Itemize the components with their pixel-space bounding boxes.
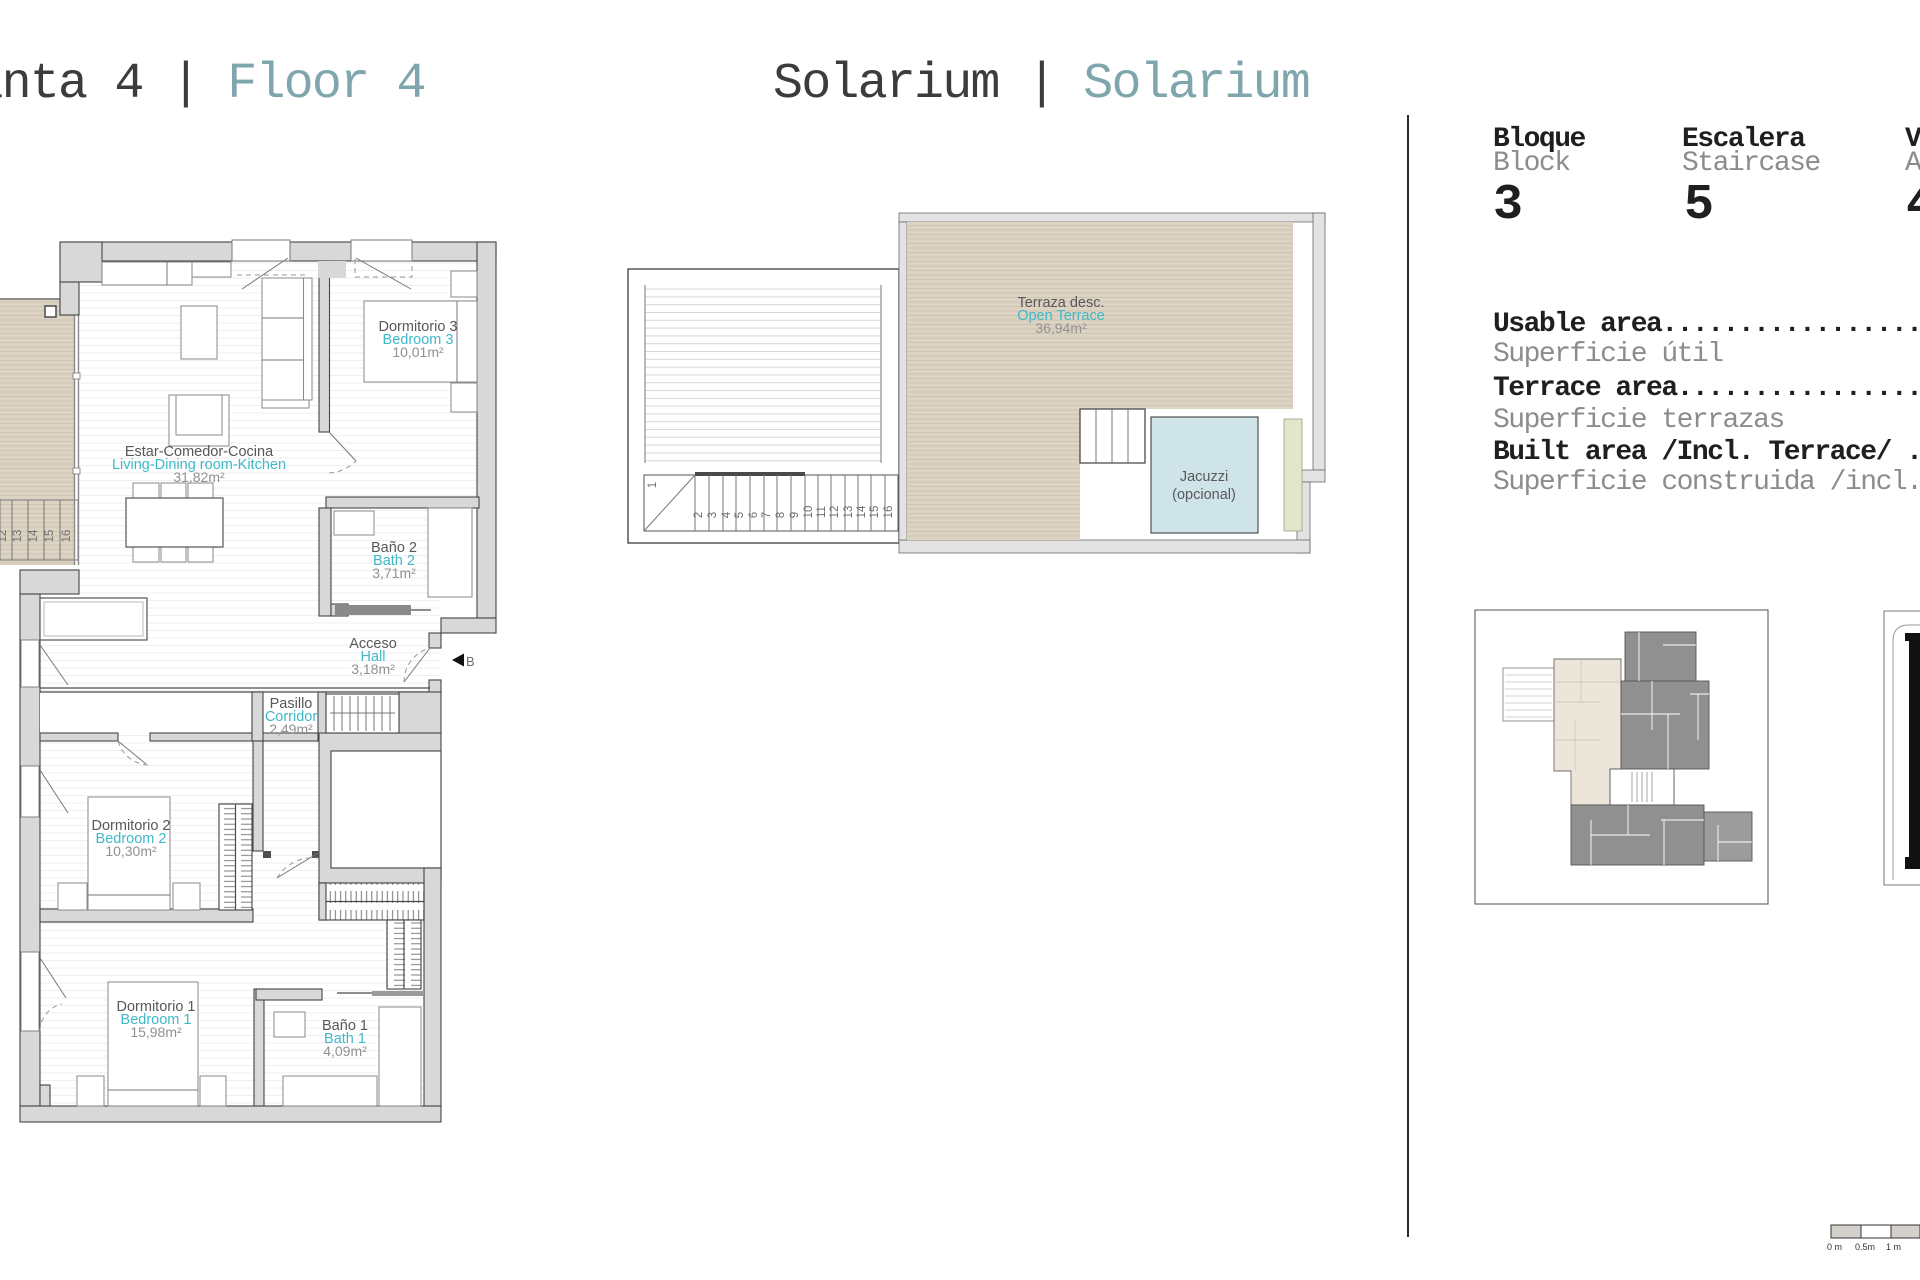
- svg-text:7: 7: [761, 512, 773, 518]
- svg-text:10: 10: [803, 506, 815, 519]
- svg-text:8: 8: [775, 512, 787, 518]
- svg-text:12: 12: [829, 506, 841, 519]
- svg-text:(opcional): (opcional): [1172, 487, 1236, 503]
- svg-text:16: 16: [61, 530, 73, 543]
- svg-text:2: 2: [693, 512, 705, 518]
- svg-text:Apartment: Apartment: [1905, 148, 1920, 179]
- svg-text:Usable area...................: Usable area.....................: [1493, 309, 1920, 340]
- svg-text:31,82m²: 31,82m²: [173, 469, 225, 485]
- svg-text:15: 15: [44, 530, 56, 543]
- svg-text:13: 13: [12, 530, 24, 543]
- svg-text:Planta 4 | Floor 4: Planta 4 | Floor 4: [0, 56, 425, 113]
- svg-text:9: 9: [789, 512, 801, 518]
- svg-text:14: 14: [28, 529, 40, 542]
- svg-text:Staircase: Staircase: [1682, 148, 1820, 179]
- svg-text:5: 5: [1684, 177, 1712, 234]
- svg-text:4: 4: [1906, 177, 1920, 234]
- svg-text:Superficie útil: Superficie útil: [1493, 339, 1723, 370]
- svg-text:B: B: [466, 654, 475, 669]
- svg-text:4: 4: [721, 511, 733, 518]
- svg-text:16: 16: [883, 506, 895, 519]
- svg-text:Superficie construida /incl. t: Superficie construida /incl. ter: [1493, 467, 1920, 498]
- svg-text:1 m: 1 m: [1886, 1242, 1901, 1252]
- svg-text:Jacuzzi: Jacuzzi: [1180, 469, 1228, 485]
- svg-text:3: 3: [707, 512, 719, 518]
- svg-text:14: 14: [856, 505, 868, 518]
- svg-text:5: 5: [734, 512, 746, 518]
- svg-text:0 m: 0 m: [1827, 1242, 1842, 1252]
- svg-text:Built area /Incl. Terrace/ ...: Built area /Incl. Terrace/ .....: [1493, 437, 1920, 468]
- svg-text:36,94m²: 36,94m²: [1035, 320, 1087, 336]
- svg-text:2,49m²: 2,49m²: [269, 721, 313, 737]
- svg-text:4,09m²: 4,09m²: [323, 1043, 367, 1059]
- svg-text:0.5m: 0.5m: [1855, 1242, 1875, 1252]
- svg-text:Block: Block: [1493, 148, 1570, 179]
- svg-text:13: 13: [843, 506, 855, 519]
- svg-text:10,30m²: 10,30m²: [105, 843, 157, 859]
- svg-text:10,01m²: 10,01m²: [392, 344, 444, 360]
- svg-text:3: 3: [1493, 177, 1521, 234]
- svg-text:Solarium | Solarium: Solarium | Solarium: [773, 56, 1309, 113]
- svg-text:15: 15: [869, 506, 881, 519]
- svg-text:15,98m²: 15,98m²: [130, 1024, 182, 1040]
- svg-text:6: 6: [748, 512, 760, 518]
- svg-text:3,18m²: 3,18m²: [351, 661, 395, 677]
- svg-text:Terrace area..................: Terrace area....................: [1493, 373, 1920, 404]
- svg-text:3,71m²: 3,71m²: [372, 565, 416, 581]
- svg-text:1: 1: [647, 482, 659, 488]
- svg-text:Superficie terrazas: Superficie terrazas: [1493, 405, 1784, 436]
- svg-text:12: 12: [0, 530, 9, 543]
- svg-text:11: 11: [816, 506, 828, 518]
